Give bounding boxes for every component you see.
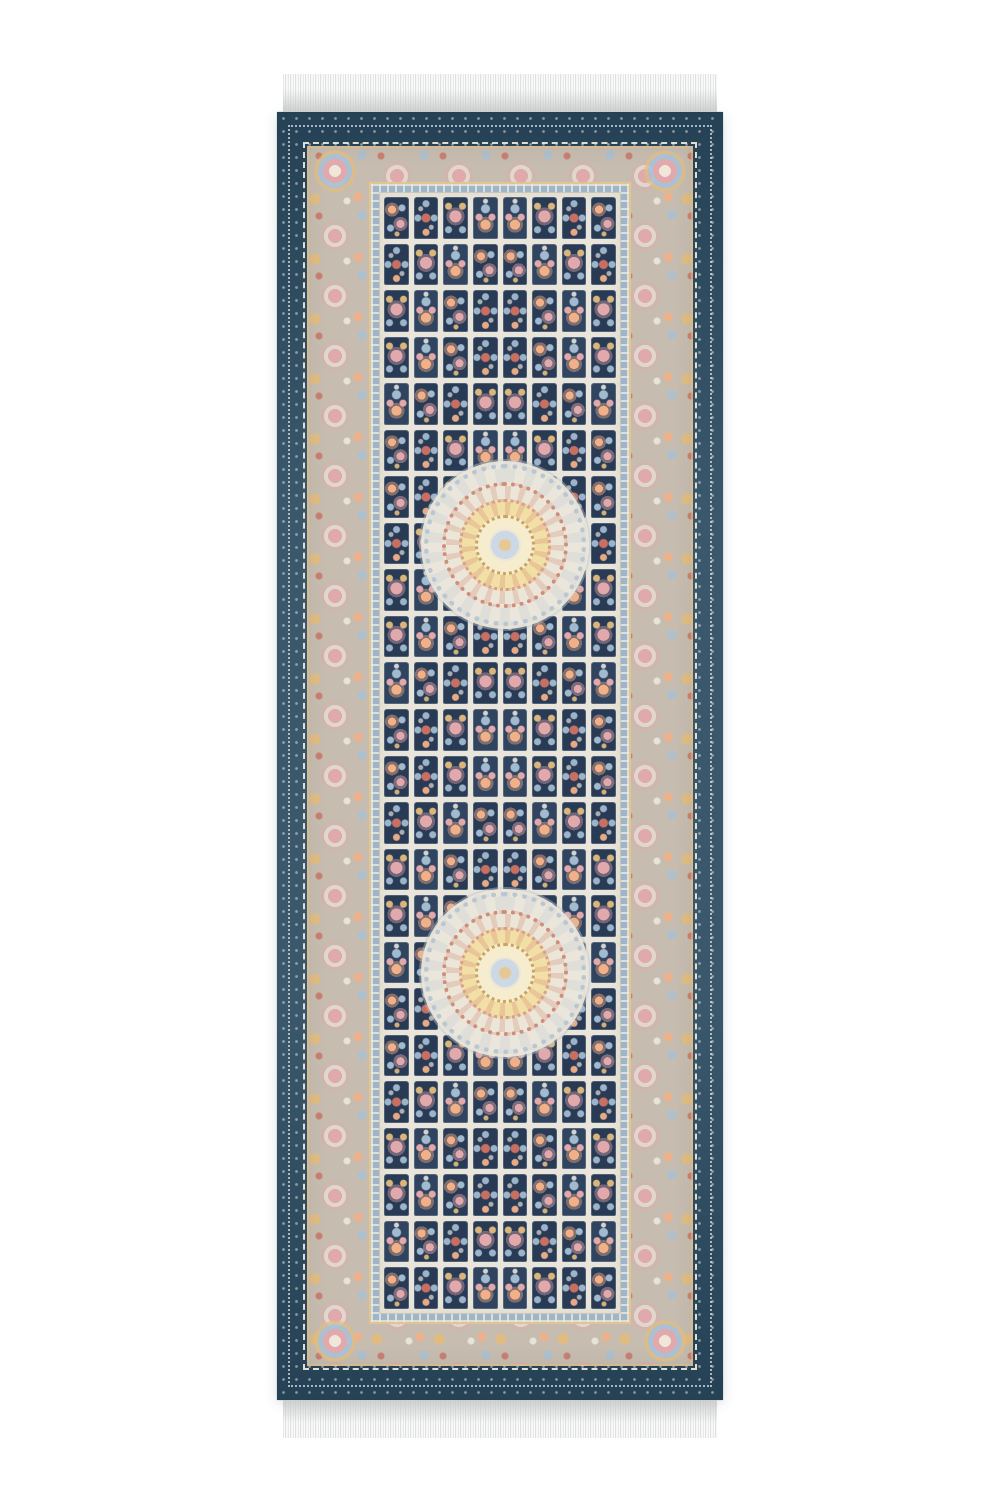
field-panel bbox=[562, 756, 587, 798]
field-panel bbox=[384, 1267, 409, 1309]
field-panel bbox=[473, 988, 498, 1030]
field-panel bbox=[532, 290, 557, 332]
field-panel bbox=[562, 569, 587, 611]
field-panel bbox=[532, 197, 557, 239]
field-panel bbox=[503, 476, 528, 518]
field-panel bbox=[384, 476, 409, 518]
field-panel bbox=[562, 244, 587, 286]
field-panel bbox=[414, 523, 439, 565]
field-panel bbox=[384, 616, 409, 658]
field-panel bbox=[562, 430, 587, 472]
corner-rosette bbox=[312, 1318, 358, 1364]
field-panel bbox=[562, 523, 587, 565]
field-panel bbox=[473, 244, 498, 286]
field-panel bbox=[414, 569, 439, 611]
field-panel bbox=[443, 1221, 468, 1263]
field-panel bbox=[503, 383, 528, 425]
field-panel bbox=[532, 244, 557, 286]
field-panel bbox=[414, 197, 439, 239]
field-grid bbox=[384, 197, 616, 1309]
field-panel bbox=[414, 802, 439, 844]
field-panel bbox=[473, 662, 498, 704]
field-panel bbox=[532, 1035, 557, 1077]
field-panel bbox=[443, 290, 468, 332]
field-panel bbox=[532, 988, 557, 1030]
field-panel bbox=[562, 476, 587, 518]
field-panel bbox=[562, 1035, 587, 1077]
field-panel bbox=[591, 1174, 616, 1216]
field-panel bbox=[384, 1081, 409, 1123]
field-panel bbox=[414, 895, 439, 937]
field-panel bbox=[473, 197, 498, 239]
field-panel bbox=[473, 756, 498, 798]
field-panel bbox=[591, 756, 616, 798]
field-panel bbox=[473, 290, 498, 332]
field-panel bbox=[532, 1128, 557, 1170]
field-panel bbox=[532, 895, 557, 937]
field-panel bbox=[443, 1035, 468, 1077]
field-panel bbox=[532, 383, 557, 425]
field-panel bbox=[443, 662, 468, 704]
field-panel bbox=[532, 1267, 557, 1309]
field-panel bbox=[532, 569, 557, 611]
field-panel bbox=[591, 988, 616, 1030]
field-panel bbox=[443, 337, 468, 379]
field-panel bbox=[473, 1221, 498, 1263]
field-panel bbox=[503, 337, 528, 379]
field-panel bbox=[562, 383, 587, 425]
field-panel bbox=[503, 244, 528, 286]
field-panel bbox=[414, 1267, 439, 1309]
corner-rosette bbox=[642, 1318, 688, 1364]
field-panel bbox=[384, 244, 409, 286]
fringe-top bbox=[283, 74, 717, 112]
field-panel bbox=[473, 1267, 498, 1309]
field-panel bbox=[414, 244, 439, 286]
rug-photo bbox=[0, 0, 1000, 1500]
field-panel bbox=[562, 616, 587, 658]
field-panel bbox=[414, 709, 439, 751]
field-panel bbox=[562, 1128, 587, 1170]
field-panel bbox=[591, 430, 616, 472]
field-panel bbox=[591, 1221, 616, 1263]
field-panel bbox=[532, 616, 557, 658]
field-panel bbox=[384, 290, 409, 332]
field-panel bbox=[414, 1035, 439, 1077]
field-panel bbox=[384, 849, 409, 891]
field-panel bbox=[562, 849, 587, 891]
field-panel bbox=[532, 756, 557, 798]
field-panel bbox=[473, 1035, 498, 1077]
field-panel bbox=[591, 895, 616, 937]
field-panel bbox=[414, 430, 439, 472]
field-panel bbox=[384, 1174, 409, 1216]
field-panel bbox=[384, 662, 409, 704]
field-panel bbox=[443, 942, 468, 984]
field-panel bbox=[503, 802, 528, 844]
field-panel bbox=[591, 476, 616, 518]
field-panel bbox=[532, 849, 557, 891]
field-panel bbox=[591, 662, 616, 704]
field-panel bbox=[414, 849, 439, 891]
field-panel bbox=[591, 616, 616, 658]
field-panel bbox=[591, 290, 616, 332]
field-panel bbox=[532, 430, 557, 472]
field-panel bbox=[503, 988, 528, 1030]
field-panel bbox=[443, 523, 468, 565]
field-panel bbox=[384, 942, 409, 984]
field-panel bbox=[384, 337, 409, 379]
field-panel bbox=[473, 942, 498, 984]
field-panel bbox=[443, 895, 468, 937]
field-panel bbox=[532, 1174, 557, 1216]
field-panel bbox=[591, 244, 616, 286]
field-panel bbox=[562, 662, 587, 704]
field-panel bbox=[414, 1081, 439, 1123]
field-panel bbox=[532, 523, 557, 565]
field-panel bbox=[384, 430, 409, 472]
field-panel bbox=[414, 1221, 439, 1263]
field-panel bbox=[532, 476, 557, 518]
field-panel bbox=[532, 662, 557, 704]
field-panel bbox=[591, 383, 616, 425]
field-panel bbox=[562, 942, 587, 984]
field-panel bbox=[473, 1174, 498, 1216]
field-panel bbox=[591, 337, 616, 379]
field-panel bbox=[591, 569, 616, 611]
field-panel bbox=[503, 569, 528, 611]
field-panel bbox=[473, 383, 498, 425]
field-panel bbox=[591, 197, 616, 239]
field-panel bbox=[503, 662, 528, 704]
field-panel bbox=[443, 569, 468, 611]
field-panel bbox=[591, 942, 616, 984]
field-panel bbox=[473, 476, 498, 518]
field-panel bbox=[443, 988, 468, 1030]
field-panel bbox=[503, 1267, 528, 1309]
field-panel bbox=[384, 895, 409, 937]
field-panel bbox=[414, 383, 439, 425]
field-panel bbox=[473, 616, 498, 658]
field-panel bbox=[443, 476, 468, 518]
field-panel bbox=[443, 1174, 468, 1216]
field-panel bbox=[384, 1221, 409, 1263]
field-panel bbox=[562, 1267, 587, 1309]
field-panel bbox=[503, 197, 528, 239]
field-panel bbox=[473, 523, 498, 565]
field-panel bbox=[532, 1081, 557, 1123]
field-panel bbox=[562, 1174, 587, 1216]
field-panel bbox=[384, 709, 409, 751]
field-panel bbox=[443, 802, 468, 844]
field-panel bbox=[473, 337, 498, 379]
field-panel bbox=[473, 895, 498, 937]
field-panel bbox=[414, 616, 439, 658]
field-panel bbox=[562, 802, 587, 844]
field-panel bbox=[443, 709, 468, 751]
field-panel bbox=[473, 849, 498, 891]
field-panel bbox=[443, 383, 468, 425]
corner-rosette bbox=[642, 148, 688, 194]
field-panel bbox=[503, 523, 528, 565]
field-panel bbox=[443, 197, 468, 239]
field-panel bbox=[473, 1081, 498, 1123]
field-panel bbox=[384, 1035, 409, 1077]
field-panel bbox=[591, 709, 616, 751]
field-panel bbox=[591, 802, 616, 844]
field-panel bbox=[414, 942, 439, 984]
field-panel bbox=[443, 430, 468, 472]
field-panel bbox=[562, 197, 587, 239]
field-panel bbox=[443, 1081, 468, 1123]
field-panel bbox=[503, 895, 528, 937]
field-panel bbox=[591, 1128, 616, 1170]
field-panel bbox=[443, 1267, 468, 1309]
field-panel bbox=[384, 197, 409, 239]
field-panel bbox=[503, 1128, 528, 1170]
field-panel bbox=[591, 1267, 616, 1309]
field bbox=[380, 193, 620, 1313]
field-panel bbox=[503, 756, 528, 798]
field-panel bbox=[503, 1221, 528, 1263]
field-panel bbox=[503, 616, 528, 658]
field-panel bbox=[473, 569, 498, 611]
field-panel bbox=[532, 802, 557, 844]
field-panel bbox=[503, 849, 528, 891]
corner-rosette bbox=[312, 148, 358, 194]
field-panel bbox=[562, 1081, 587, 1123]
rug bbox=[277, 112, 723, 1400]
field-panel bbox=[562, 709, 587, 751]
field-panel bbox=[473, 1128, 498, 1170]
field-panel bbox=[503, 1035, 528, 1077]
field-panel bbox=[562, 1221, 587, 1263]
fringe-bottom bbox=[283, 1400, 717, 1438]
field-panel bbox=[414, 476, 439, 518]
field-panel bbox=[384, 1128, 409, 1170]
field-panel bbox=[443, 616, 468, 658]
field-panel bbox=[532, 337, 557, 379]
field-panel bbox=[503, 430, 528, 472]
field-panel bbox=[384, 569, 409, 611]
field-panel bbox=[443, 756, 468, 798]
field-panel bbox=[473, 802, 498, 844]
field-panel bbox=[591, 1081, 616, 1123]
field-panel bbox=[384, 756, 409, 798]
field-panel bbox=[503, 1174, 528, 1216]
field-panel bbox=[503, 1081, 528, 1123]
field-panel bbox=[443, 849, 468, 891]
field-panel bbox=[414, 756, 439, 798]
field-panel bbox=[503, 709, 528, 751]
field-panel bbox=[384, 988, 409, 1030]
field-panel bbox=[384, 383, 409, 425]
field-panel bbox=[562, 988, 587, 1030]
field-panel bbox=[414, 337, 439, 379]
field-panel bbox=[503, 290, 528, 332]
field-panel bbox=[414, 290, 439, 332]
field-panel bbox=[414, 1128, 439, 1170]
field-panel bbox=[562, 290, 587, 332]
field-panel bbox=[532, 709, 557, 751]
field-panel bbox=[562, 337, 587, 379]
field-panel bbox=[532, 942, 557, 984]
field-panel bbox=[414, 662, 439, 704]
field-panel bbox=[443, 1128, 468, 1170]
field-panel bbox=[591, 849, 616, 891]
field-panel bbox=[503, 942, 528, 984]
field-panel bbox=[414, 988, 439, 1030]
field-panel bbox=[532, 1221, 557, 1263]
field-panel bbox=[562, 895, 587, 937]
field-panel bbox=[443, 244, 468, 286]
field-panel bbox=[414, 1174, 439, 1216]
field-panel bbox=[591, 523, 616, 565]
field-panel bbox=[384, 802, 409, 844]
field-panel bbox=[591, 1035, 616, 1077]
field-panel bbox=[473, 709, 498, 751]
field-panel bbox=[473, 430, 498, 472]
field-panel bbox=[384, 523, 409, 565]
